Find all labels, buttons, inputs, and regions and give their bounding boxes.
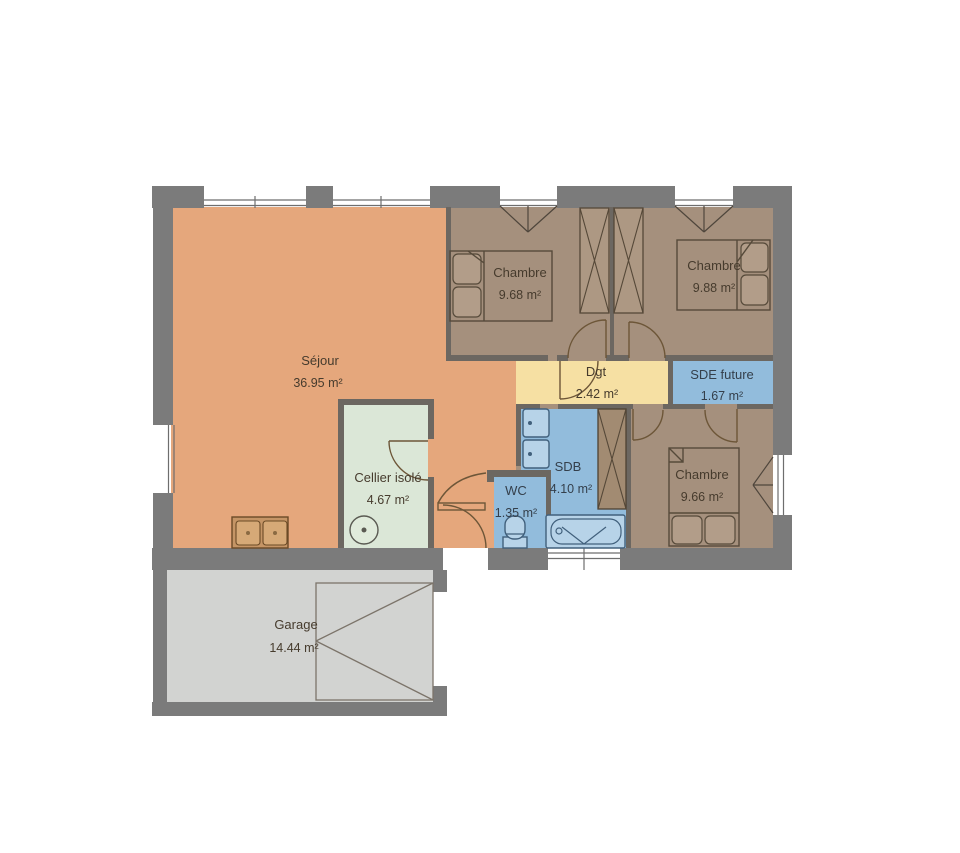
- label-sejour-name: Séjour: [301, 353, 339, 368]
- wall-sde-chambre3-2: [737, 404, 773, 409]
- wall-garage-bottom: [152, 702, 447, 716]
- wall-garage-right-top: [433, 570, 447, 592]
- bed3-pillow-2: [705, 516, 735, 544]
- wardrobe-sdb-icon: [598, 409, 626, 509]
- label-dgt-name: Dgt: [586, 364, 607, 379]
- label-sde-area: 1.67 m²: [701, 389, 743, 403]
- label-garage-area: 14.44 m²: [269, 641, 318, 655]
- room-garage-floor: [167, 570, 433, 702]
- floor-plan-canvas: Séjour 36.95 m² Chambre 9.68 m² Chambre …: [0, 0, 960, 853]
- label-garage-name: Garage: [274, 617, 317, 632]
- kitchen-sink-drain-1: [246, 531, 250, 535]
- wall-wc-left-stub: [487, 470, 494, 482]
- window-chambre1-glass: [500, 200, 557, 206]
- label-chambre2-name: Chambre: [687, 258, 740, 273]
- wall-left-upper: [153, 186, 173, 425]
- wall-right-upper: [773, 186, 792, 455]
- label-wc-name: WC: [505, 483, 527, 498]
- bed2-pillow-1: [741, 243, 768, 272]
- sdb-basin-drain-1: [528, 421, 532, 425]
- sdb-basin-1: [523, 409, 549, 437]
- wall-dgt-sdb-2: [558, 404, 633, 409]
- wall-bedrooms-bottom-stub: [557, 355, 568, 361]
- wall-sdb-chambre3: [626, 409, 631, 548]
- label-chambre3-area: 9.66 m²: [681, 490, 723, 504]
- label-cellier-name: Cellier isolé: [354, 470, 421, 485]
- sdb-basin-drain-2: [528, 452, 532, 456]
- label-dgt-area: 2.42 m²: [576, 387, 618, 401]
- wall-bedrooms-bottom-2: [606, 355, 629, 361]
- wardrobe-chambre1-icon: [580, 208, 609, 313]
- toilet-icon: [503, 516, 527, 548]
- wall-garage-left: [153, 570, 167, 716]
- floor-plan-svg: Séjour 36.95 m² Chambre 9.68 m² Chambre …: [0, 0, 960, 853]
- label-chambre1-name: Chambre: [493, 265, 546, 280]
- wall-cellier-left: [338, 399, 344, 548]
- bed3-pillow-1: [672, 516, 702, 544]
- water-heater-center: [362, 528, 367, 533]
- bed1-pillow-1: [453, 254, 481, 284]
- kitchen-sink-icon: [232, 517, 288, 548]
- sdb-basin-2: [523, 440, 549, 468]
- label-chambre1-area: 9.68 m²: [499, 288, 541, 302]
- label-sejour-area: 36.95 m²: [293, 376, 342, 390]
- wall-dgt-sde: [668, 361, 673, 404]
- wall-bedrooms-bottom-3: [665, 355, 773, 361]
- bed2-pillow-2: [741, 275, 768, 305]
- bathtub-icon: [546, 515, 625, 548]
- label-sdb-area: 4.10 m²: [550, 482, 592, 496]
- window-chambre2-glass: [675, 200, 733, 206]
- water-heater-icon: [350, 516, 378, 544]
- wall-bottom-1: [152, 548, 443, 570]
- wardrobe-chambre2-icon: [614, 208, 643, 313]
- wall-top-3: [430, 186, 500, 208]
- window-sdb-bottom: [548, 548, 620, 570]
- bed1-pillow-2: [453, 287, 481, 317]
- window-chambre3-glass: [778, 455, 784, 515]
- label-chambre2-area: 9.88 m²: [693, 281, 735, 295]
- wall-wc-top: [487, 470, 551, 477]
- wall-bottom-2: [488, 548, 548, 570]
- wall-garage-right-bottom: [433, 686, 447, 716]
- window-sejour-2: [333, 196, 430, 208]
- wall-cellier-right-top: [428, 405, 434, 439]
- wall-cellier-top: [338, 399, 434, 405]
- wall-bottom-3: [620, 548, 792, 570]
- wall-bedrooms-bottom-1: [446, 355, 548, 361]
- wall-cellier-right-bottom: [428, 477, 434, 548]
- label-cellier-area: 4.67 m²: [367, 493, 409, 507]
- label-wc-area: 1.35 m²: [495, 506, 537, 520]
- wall-sejour-sdb: [516, 404, 521, 466]
- kitchen-sink-drain-2: [273, 531, 277, 535]
- wall-top-2: [306, 186, 333, 208]
- label-sde-name: SDE future: [690, 367, 754, 382]
- label-chambre3-name: Chambre: [675, 467, 728, 482]
- label-sdb-name: SDB: [555, 459, 582, 474]
- window-sejour-1: [204, 196, 306, 208]
- wall-sde-chambre3-1: [663, 404, 705, 409]
- wall-top-4: [557, 186, 675, 208]
